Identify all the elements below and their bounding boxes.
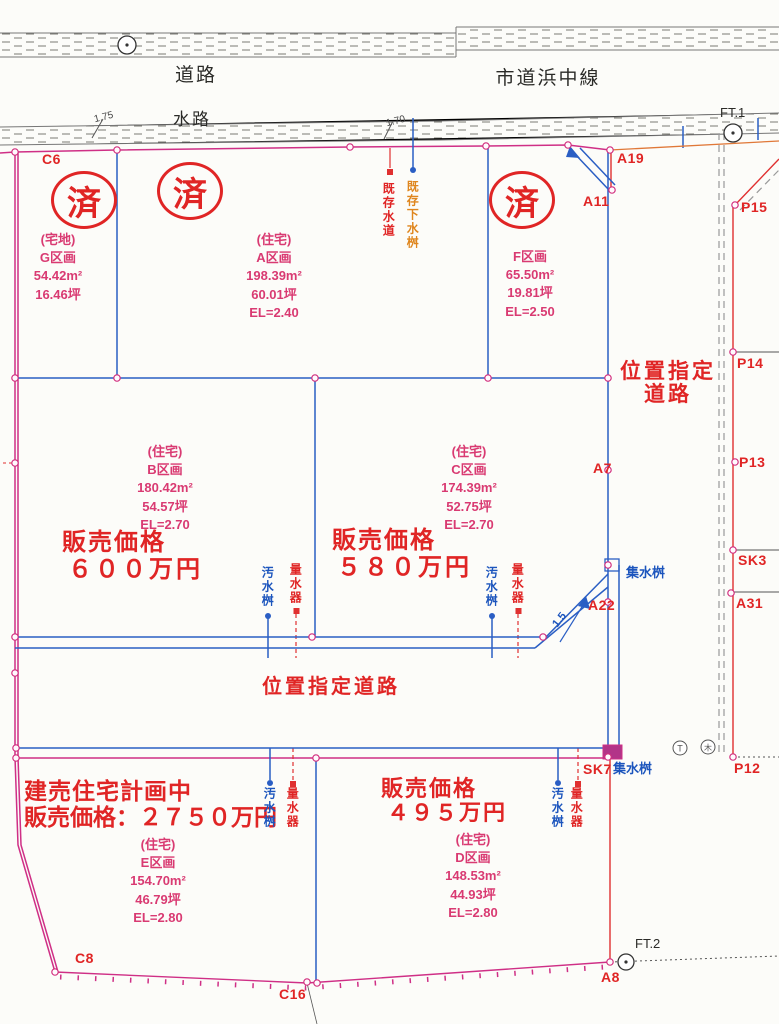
parcel-d-area: 148.53m² [445, 867, 501, 885]
parcel-a-name: A区画 [246, 249, 302, 267]
parcel-e-use: (住宅) [130, 836, 186, 854]
utility-pole-icons: T 木 [673, 740, 715, 755]
parcel-f-tsubo: 19.81坪 [505, 284, 555, 302]
sewer-basin-label-d: 汚水桝 [550, 787, 563, 829]
parcel-f-area: 65.50m² [505, 266, 555, 284]
point-a22: A22 [588, 598, 615, 613]
sold-stamp-f: 済 [489, 171, 555, 229]
parcel-b-name: B区画 [137, 461, 193, 479]
parcel-c-el: EL=2.70 [441, 516, 497, 534]
point-p15: P15 [741, 200, 767, 215]
parcel-c-tsubo: 52.75坪 [441, 498, 497, 516]
point-a11: A11 [583, 194, 609, 209]
designated-road-line1: 位置指定 [620, 360, 716, 383]
parcel-f-name: F区画 [505, 248, 555, 266]
parcel-e-price-line: 販売価格：２７５０万円 [24, 805, 277, 830]
catch-basin-label-mid: 集水桝 [626, 566, 665, 580]
parcel-c-name: C区画 [441, 461, 497, 479]
parcel-b-price: ６００万円 [68, 557, 203, 583]
point-c8: C8 [75, 951, 94, 966]
point-a7: A7 [593, 461, 612, 476]
designated-road-line2: 道路 [620, 383, 716, 406]
fence-dashed-lines [719, 133, 779, 755]
parcel-f-el: EL=2.50 [505, 303, 555, 321]
parcel-b-price-label: 販売価格 [62, 530, 166, 556]
site-plan: T 木 道路 市道浜中線 水路 1.75 1.70 1.5 FT.1 FT.2 … [0, 0, 779, 1024]
parcel-g-info: (宅地) G区画 54.42m² 16.46坪 [34, 231, 82, 304]
city-road-label: 市道浜中線 [495, 69, 600, 90]
parcel-b-tsubo: 54.57坪 [137, 498, 193, 516]
parcel-c-price: ５８０万円 [337, 555, 472, 581]
point-p14: P14 [737, 356, 763, 371]
parcel-c-use: (住宅) [441, 443, 497, 461]
parcel-d-use: (住宅) [445, 831, 501, 849]
waterway-label: 水路 [173, 111, 211, 130]
parcel-c-info: (住宅) C区画 174.39m² 52.75坪 EL=2.70 [441, 443, 497, 534]
road-edge-orange [610, 141, 779, 150]
water-meter-label-b: 量水器 [288, 563, 301, 605]
designated-road-horizontal-label: 位置指定道路 [262, 676, 400, 698]
pole-icon-2: 木 [704, 743, 712, 753]
parcel-g-tsubo: 16.46坪 [34, 286, 82, 304]
pole-icon-1: T [677, 744, 683, 754]
parcel-d-info: (住宅) D区画 148.53m² 44.93坪 EL=2.80 [445, 831, 501, 922]
parcel-e-name: E区画 [130, 854, 186, 872]
existing-sewer-label: 既存下水桝 [405, 180, 418, 250]
parcel-d-price-label: 販売価格 [381, 777, 477, 801]
parcel-a-tsubo: 60.01坪 [246, 286, 302, 304]
point-c6: C6 [42, 152, 61, 167]
parcel-d-name: D区画 [445, 849, 501, 867]
parcel-c-price-label: 販売価格 [332, 528, 436, 554]
parcel-f-info: F区画 65.50m² 19.81坪 EL=2.50 [505, 248, 555, 321]
parcel-g-name: G区画 [34, 249, 82, 267]
point-sk7: SK7 [583, 762, 612, 777]
parcel-a-info: (住宅) A区画 198.39m² 60.01坪 EL=2.40 [246, 231, 302, 322]
parcel-a-el: EL=2.40 [246, 304, 302, 322]
designated-road-vertical-label: 位置指定 道路 [620, 360, 716, 406]
parcel-g-area: 54.42m² [34, 267, 82, 285]
parcel-b-info: (住宅) B区画 180.42m² 54.57坪 EL=2.70 [137, 443, 193, 534]
water-meter-label-c: 量水器 [510, 563, 523, 605]
point-sk3: SK3 [738, 553, 767, 568]
water-meter-label-e: 量水器 [285, 787, 298, 829]
parcel-g-use: (宅地) [34, 231, 82, 249]
parcel-e-area: 154.70m² [130, 872, 186, 890]
road-label: 道路 [175, 66, 217, 87]
point-c16: C16 [279, 987, 306, 1002]
sold-stamp-a: 済 [157, 162, 223, 220]
point-a8: A8 [601, 970, 620, 985]
parcel-b-use: (住宅) [137, 443, 193, 461]
parcel-e-plan-note: 建売住宅計画中 [24, 779, 192, 804]
parcel-a-area: 198.39m² [246, 267, 302, 285]
sold-stamp-g: 済 [51, 171, 117, 229]
parcel-e-tsubo: 46.79坪 [130, 891, 186, 909]
point-p12: P12 [734, 761, 760, 776]
parcel-c-area: 174.39m² [441, 479, 497, 497]
site-plan-linework: T 木 [0, 0, 779, 1024]
parcel-d-price: ４９５万円 [387, 801, 507, 825]
parcel-a-use: (住宅) [246, 231, 302, 249]
top-road-band [0, 27, 779, 57]
benchmark-ft2: FT.2 [635, 937, 660, 951]
point-p13: P13 [739, 455, 765, 470]
parcel-e-el: EL=2.80 [130, 909, 186, 927]
parcel-e-info: (住宅) E区画 154.70m² 46.79坪 EL=2.80 [130, 836, 186, 927]
parcel-d-tsubo: 44.93坪 [445, 886, 501, 904]
sewer-basin-label-e: 汚水桝 [262, 787, 275, 829]
point-a31: A31 [736, 596, 763, 611]
water-meter-label-d: 量水器 [569, 787, 582, 829]
parcel-b-area: 180.42m² [137, 479, 193, 497]
sewer-basin-label-b: 汚水桝 [260, 566, 273, 608]
benchmark-ft1: FT.1 [720, 106, 745, 120]
existing-water-label: 既存水道 [381, 182, 394, 238]
parcel-d-el: EL=2.80 [445, 904, 501, 922]
point-a19: A19 [617, 151, 644, 166]
catch-basin-label-bottom: 集水桝 [613, 762, 652, 776]
sewer-basin-label-c: 汚水桝 [484, 566, 497, 608]
